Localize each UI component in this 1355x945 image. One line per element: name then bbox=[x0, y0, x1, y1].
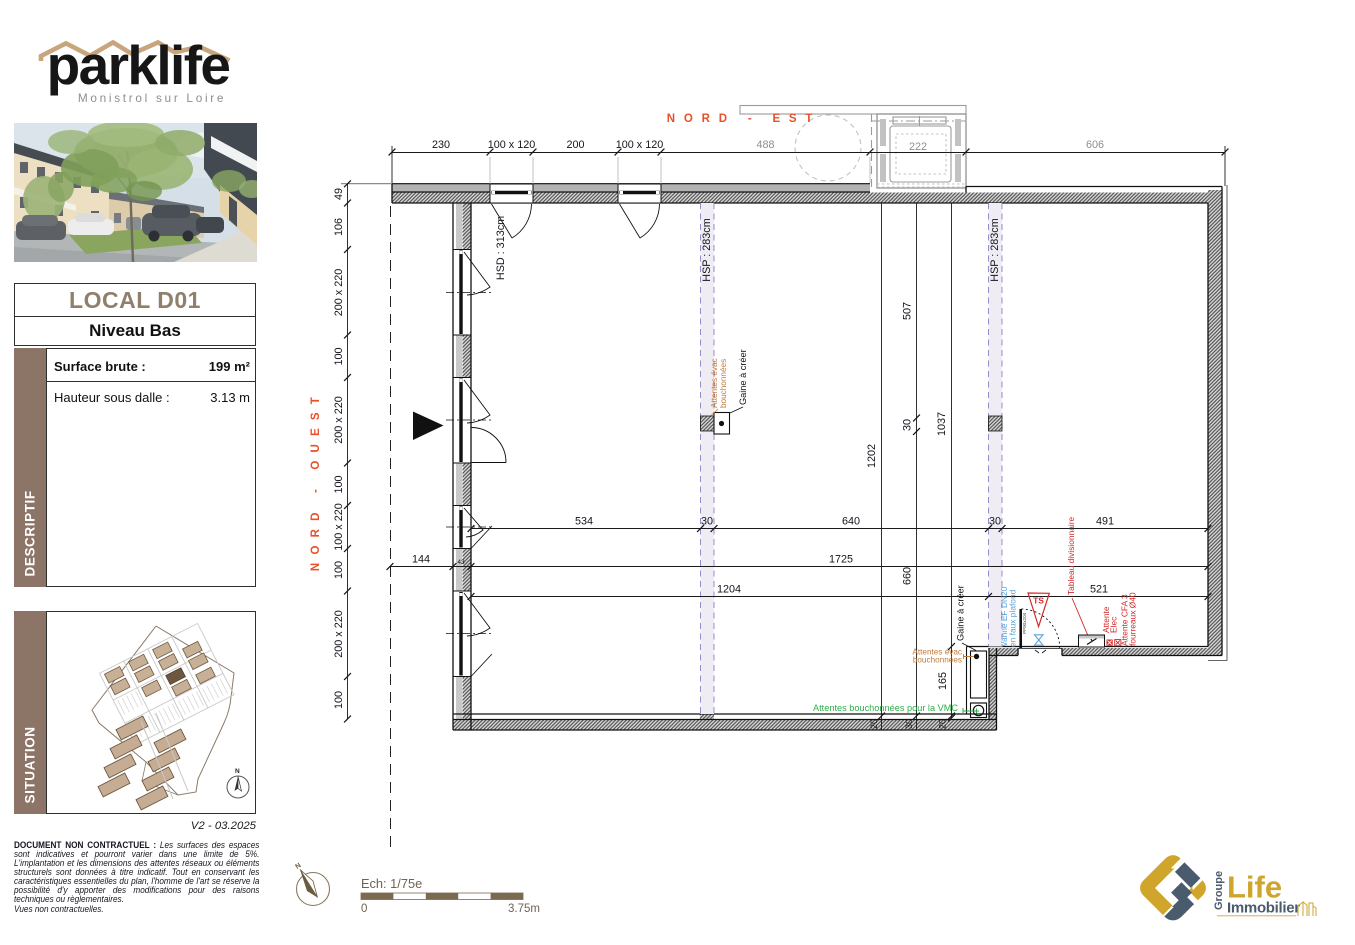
svg-text:507: 507 bbox=[902, 302, 914, 320]
svg-text:Gaine à créer: Gaine à créer bbox=[738, 349, 748, 405]
svg-text:488: 488 bbox=[756, 139, 774, 151]
svg-text:TS: TS bbox=[1033, 596, 1044, 606]
svg-text:1204: 1204 bbox=[717, 584, 741, 596]
svg-text:100 x 120: 100 x 120 bbox=[616, 139, 663, 151]
svg-text:100: 100 bbox=[333, 347, 345, 365]
svg-text:Immobilier: Immobilier bbox=[1227, 900, 1300, 917]
svg-text:20: 20 bbox=[938, 719, 948, 729]
svg-text:534: 534 bbox=[575, 516, 593, 528]
svg-text:bouchonnées: bouchonnées bbox=[719, 359, 728, 408]
svg-text:1037: 1037 bbox=[936, 412, 948, 436]
svg-text:0: 0 bbox=[361, 903, 367, 915]
svg-text:100 x 120: 100 x 120 bbox=[488, 139, 535, 151]
svg-text:100: 100 bbox=[333, 475, 345, 493]
svg-text:200 x 220: 200 x 220 bbox=[333, 269, 345, 316]
svg-text:HSP : 283cm: HSP : 283cm bbox=[989, 218, 1001, 281]
svg-text:Gaine à créer: Gaine à créer bbox=[956, 585, 966, 641]
svg-text:HSP : 283cm: HSP : 283cm bbox=[701, 218, 713, 281]
svg-text:222: 222 bbox=[909, 141, 927, 153]
svg-text:43: 43 bbox=[457, 559, 465, 566]
svg-text:106: 106 bbox=[333, 218, 345, 236]
svg-text:521: 521 bbox=[1090, 584, 1108, 596]
svg-text:100 x 220: 100 x 220 bbox=[333, 503, 345, 550]
svg-text:Elec: Elec bbox=[1109, 617, 1119, 633]
svg-text:49: 49 bbox=[333, 188, 345, 200]
svg-text:230: 230 bbox=[432, 139, 450, 151]
svg-text:1725: 1725 bbox=[829, 554, 853, 566]
svg-text:Tableau divisionnaire: Tableau divisionnaire bbox=[1066, 516, 1076, 595]
svg-text:491: 491 bbox=[1096, 516, 1114, 528]
svg-text:640: 640 bbox=[842, 516, 860, 528]
svg-text:144: 144 bbox=[412, 554, 430, 566]
svg-text:Ech: 1/75e: Ech: 1/75e bbox=[361, 876, 422, 891]
svg-text:606: 606 bbox=[1086, 139, 1104, 151]
svg-text:NORD - EST: NORD - EST bbox=[667, 113, 821, 125]
svg-text:200 x 220: 200 x 220 bbox=[333, 396, 345, 443]
svg-text:bouchonnées: bouchonnées bbox=[913, 656, 962, 665]
svg-text:100: 100 bbox=[333, 561, 345, 579]
svg-text:20: 20 bbox=[869, 719, 879, 729]
svg-text:200: 200 bbox=[566, 139, 584, 151]
svg-text:660: 660 bbox=[902, 567, 914, 585]
svg-text:PP90x204: PP90x204 bbox=[1022, 612, 1027, 634]
svg-text:Groupe: Groupe bbox=[1213, 871, 1225, 910]
svg-text:Attentes évac: Attentes évac bbox=[710, 358, 719, 408]
svg-text:Attentes bouchonnées pour la V: Attentes bouchonnées pour la VMC bbox=[813, 703, 958, 713]
svg-text:3.75m: 3.75m bbox=[508, 903, 540, 915]
svg-text:30: 30 bbox=[701, 516, 713, 528]
svg-text:30: 30 bbox=[902, 419, 914, 431]
svg-text:30: 30 bbox=[989, 516, 1001, 528]
svg-text:30: 30 bbox=[904, 719, 914, 729]
svg-text:HSD : 313cm: HSD : 313cm bbox=[495, 216, 507, 280]
svg-text:fourreaux Ø40: fourreaux Ø40 bbox=[1128, 592, 1138, 646]
svg-text:NORD - OUEST: NORD - OUEST bbox=[310, 389, 322, 571]
svg-text:N: N bbox=[294, 862, 302, 871]
svg-text:165: 165 bbox=[937, 672, 949, 690]
svg-text:1202: 1202 bbox=[866, 444, 878, 468]
svg-text:200 x 220: 200 x 220 bbox=[333, 610, 345, 657]
svg-text:100: 100 bbox=[333, 691, 345, 709]
svg-text:en faux plafond: en faux plafond bbox=[1008, 589, 1018, 647]
